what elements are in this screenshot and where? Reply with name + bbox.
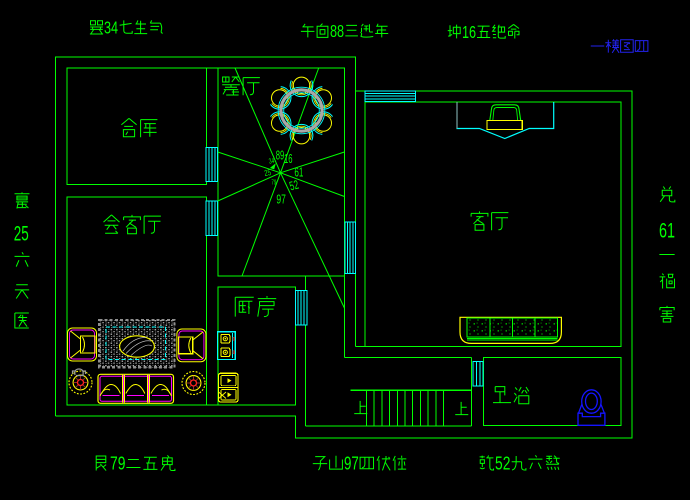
svg-text:34: 34: [104, 17, 118, 37]
svg-text:97: 97: [276, 192, 286, 206]
svg-text:52: 52: [495, 454, 510, 475]
svg-text:61: 61: [659, 220, 675, 243]
svg-text:16: 16: [284, 152, 293, 166]
svg-text:16: 16: [462, 22, 476, 42]
svg-text:89: 89: [276, 149, 285, 163]
svg-text:25: 25: [14, 223, 29, 246]
svg-text:97: 97: [344, 454, 359, 475]
svg-text:88: 88: [330, 21, 344, 41]
svg-text:79: 79: [271, 178, 276, 187]
svg-text:79: 79: [110, 454, 125, 475]
